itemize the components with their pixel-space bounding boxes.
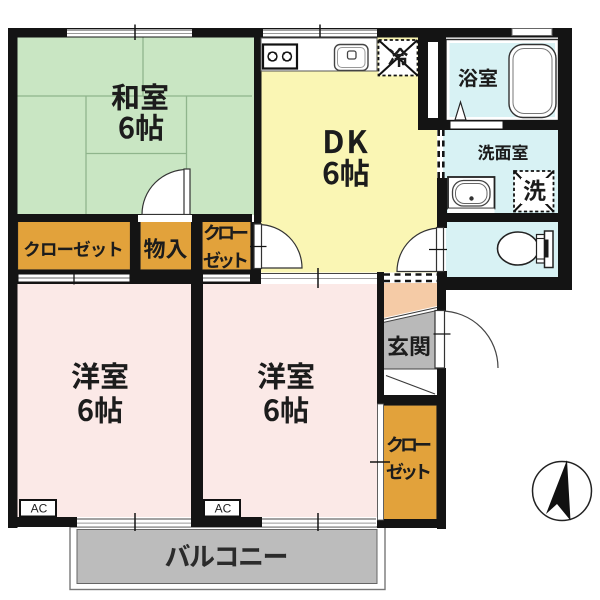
svg-text:AC: AC	[215, 502, 232, 516]
svg-text:AC: AC	[31, 502, 48, 516]
